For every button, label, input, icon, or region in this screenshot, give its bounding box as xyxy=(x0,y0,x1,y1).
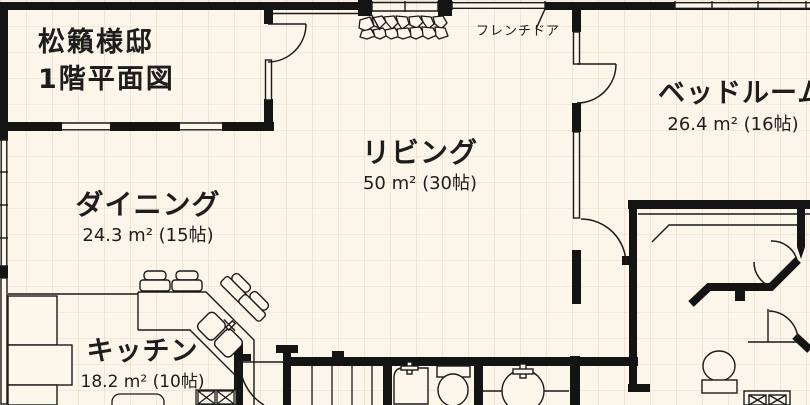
french-door-frame xyxy=(372,1,438,12)
pot-icon xyxy=(172,271,202,291)
kitchen-stove-burners xyxy=(140,269,273,322)
door-swing-bedroom xyxy=(577,64,616,103)
window-bedroom xyxy=(675,1,810,10)
room-label-kitchen: キッチン 18.2 m² (10帖) xyxy=(75,336,210,392)
toilet-icon xyxy=(437,366,470,405)
room-name: キッチン xyxy=(75,336,210,368)
walls-diagonal xyxy=(691,260,810,350)
stairs xyxy=(312,366,372,405)
room-size: 50 m² (30帖) xyxy=(330,173,510,194)
owner-name: 松籟様邸 xyxy=(38,24,175,61)
washbasin-icon xyxy=(394,362,428,404)
vanity-basin-icon xyxy=(483,364,569,405)
pot-icon xyxy=(140,271,170,291)
door-swing-title-room xyxy=(268,24,306,62)
room-size: 18.2 m² (10帖) xyxy=(75,372,210,392)
room-name: リビング xyxy=(330,136,510,169)
table-icon xyxy=(112,394,164,405)
toilet-icon xyxy=(702,351,737,393)
room-name: ベッドルーム xyxy=(658,78,810,110)
stone-path xyxy=(359,16,448,39)
kitchen-appliance-icons xyxy=(112,390,236,405)
door-swing-kitchen-hall xyxy=(240,362,290,405)
room-size: 26.4 m² (16帖) xyxy=(658,114,808,135)
floor-title: 1階平面図 xyxy=(38,61,175,98)
door-swing-corridor xyxy=(581,219,626,264)
room-name: ダイニング xyxy=(58,188,238,221)
suite-fixtures xyxy=(702,351,790,405)
french-door-label: フレンチドア xyxy=(476,20,560,39)
plan-title-block: 松籟様邸 1階平面図 xyxy=(38,24,175,98)
wall-stub xyxy=(735,291,745,301)
washer-icon xyxy=(744,391,790,405)
door-swing-toilet-room xyxy=(769,311,798,340)
window-dining-left xyxy=(0,140,8,266)
floor-plan: 松籟様邸 1階平面図 フレンチドア リビング 50 m² (30帖) ダイニング… xyxy=(0,0,810,405)
room-size: 24.3 m² (15帖) xyxy=(58,225,238,246)
room-label-dining: ダイニング 24.3 m² (15帖) xyxy=(58,188,238,246)
room-label-living: リビング 50 m² (30帖) xyxy=(330,136,510,194)
room-label-bedroom: ベッドルーム 26.4 m² (16帖) xyxy=(658,78,810,135)
window-french-door-side xyxy=(452,1,545,10)
